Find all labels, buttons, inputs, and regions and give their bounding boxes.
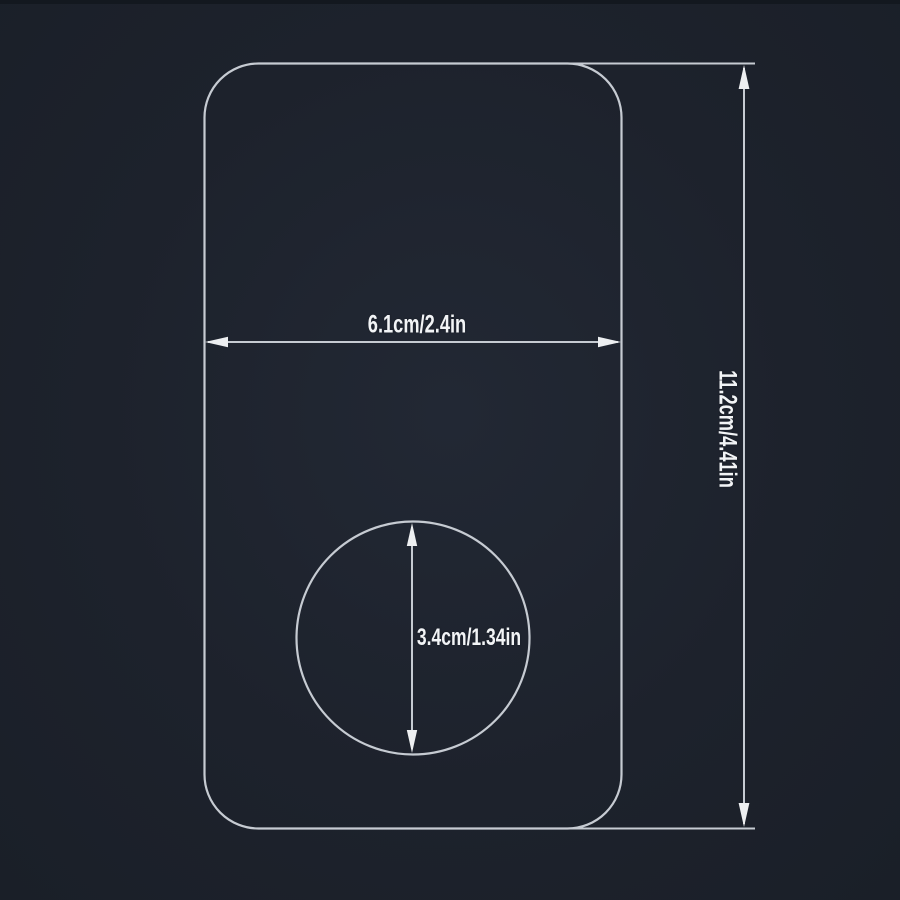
- diagram-canvas: [0, 0, 900, 900]
- width-arrowhead-right-icon: [598, 337, 621, 347]
- width-arrowhead-left-icon: [205, 337, 228, 347]
- height-arrowhead-bottom-icon: [739, 803, 750, 827]
- diameter-arrowhead-top-icon: [407, 523, 417, 546]
- height-dimension-label: 11.2cm/4.41in: [713, 370, 742, 488]
- diameter-arrowhead-bottom-icon: [407, 730, 417, 753]
- width-dimension-label: 6.1cm/2.4in: [368, 311, 466, 340]
- circle-diameter-label: 3.4cm/1.34in: [417, 624, 521, 652]
- dimension-diagram: 6.1cm/2.4in 11.2cm/4.41in 3.4cm/1.34in: [0, 0, 900, 900]
- height-arrowhead-top-icon: [739, 65, 750, 89]
